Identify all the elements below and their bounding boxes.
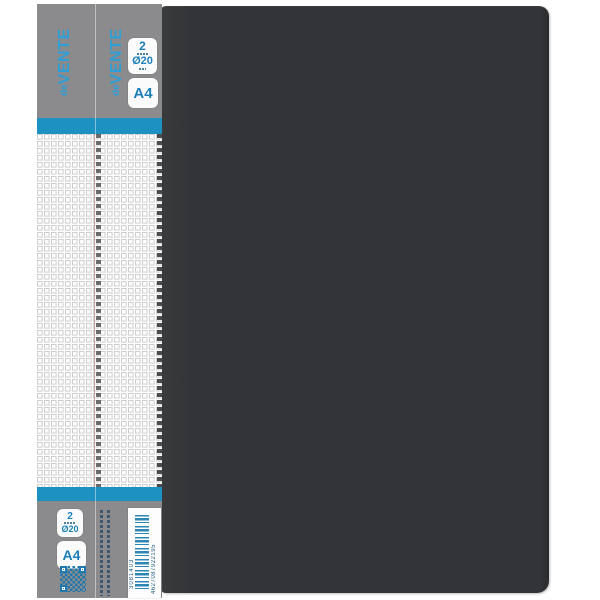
brand-prefix: de (59, 84, 70, 96)
format-label: A4 (133, 85, 152, 102)
rings-count: 2 (139, 41, 146, 52)
accent-stripe-top (37, 118, 162, 134)
spine-label-header: deVENTE deVENTE 2 Ø20 A4 (37, 4, 162, 118)
barcode: 3081403 4627087922195 (128, 508, 161, 598)
brand-logo: deVENTE (49, 12, 81, 112)
qr-finder (60, 566, 67, 573)
ring-spec-badge: 2 Ø20 (128, 38, 157, 74)
ring-diameter: Ø20 (132, 56, 153, 67)
brand-prefix: de (111, 84, 122, 96)
barcode-bars (135, 515, 149, 589)
fine-print-text (100, 510, 103, 596)
perforation-dots (157, 134, 162, 487)
format-label: A4 (63, 547, 81, 563)
ring-diameter: Ø20 (61, 525, 78, 534)
checkered-insert-paper (37, 134, 162, 487)
qr-code-icon (60, 566, 86, 592)
product-photo: deVENTE deVENTE 2 Ø20 A4 (0, 0, 600, 600)
brand-logo-text: deVENTE (49, 12, 81, 112)
format-badge: A4 (128, 78, 158, 108)
rings-count: 2 (67, 512, 73, 521)
qr-finder (79, 566, 86, 573)
micro-text (139, 68, 146, 70)
fine-print-text (107, 510, 110, 596)
brand-name: VENTE (108, 28, 125, 84)
spine-label: deVENTE deVENTE 2 Ø20 A4 (37, 4, 162, 598)
label-column-divider (95, 4, 96, 598)
qr-finder (60, 585, 67, 592)
accent-stripe-bottom (37, 487, 162, 501)
perforation-dots (96, 134, 101, 487)
barcode-ean: 4627087922195 (151, 512, 157, 594)
format-badge: A4 (57, 541, 86, 569)
ring-spec-badge: 2 Ø20 (57, 509, 83, 537)
binder-cover (160, 6, 549, 593)
brand-name: VENTE (56, 28, 73, 84)
